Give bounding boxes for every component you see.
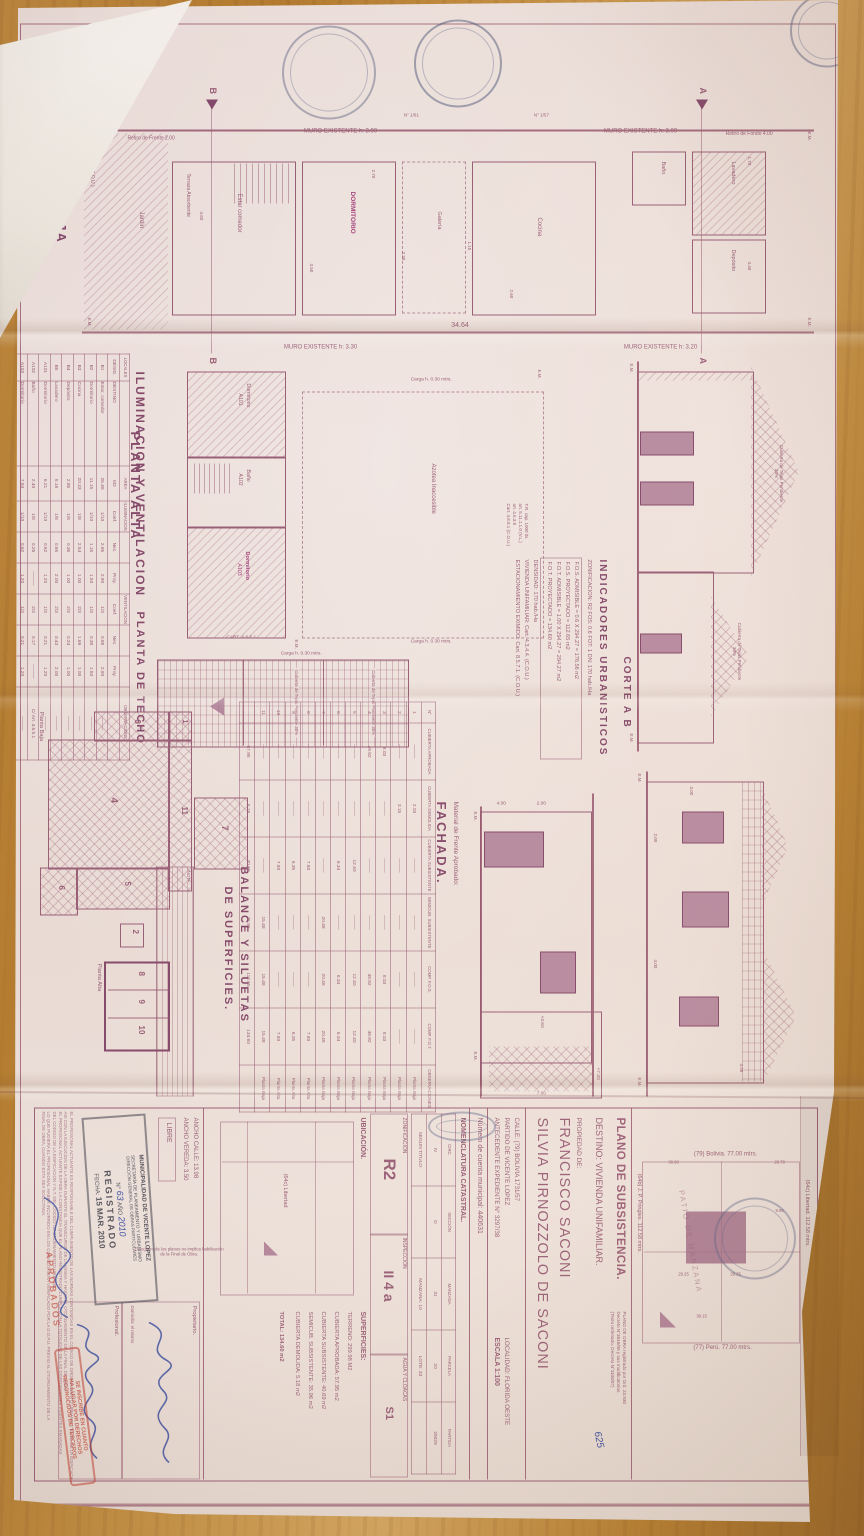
- table-cell: 0.62: [39, 532, 51, 563]
- jardin-hatch: [84, 134, 168, 330]
- section-line-a: [701, 108, 702, 354]
- table-cell: Coef.: [108, 501, 120, 532]
- table-cell: ———: [406, 723, 421, 780]
- zonificacion-cell: ZONIFICACIÓN R2: [370, 1114, 408, 1236]
- zonificacion-value: R2: [379, 1159, 399, 1181]
- table-cell: CUBIERTA SUBSISTENTE: [421, 837, 435, 894]
- table-cell: [119, 381, 129, 466]
- table-cell: 0.17: [27, 625, 39, 656]
- plan-title: PLANO DE SUBSISTENCIA.: [613, 1118, 626, 1280]
- table-cell: 7.50: [16, 466, 28, 501]
- ubicacion-map: [220, 1122, 354, 1296]
- table-cell: COMP. F.O.S.: [421, 951, 435, 1008]
- table-cell: B3: [73, 354, 85, 381]
- table-cell: Dormitorio: [39, 381, 51, 466]
- superficies-title: SUPERFICIES:: [358, 1312, 366, 1361]
- table-row: 38.03—————————8.038.03Planta Baja: [376, 702, 391, 1112]
- round-seal-icon: [790, 0, 864, 68]
- stamp-num-value: 63: [115, 1190, 126, 1201]
- table-cell: 2.90: [96, 563, 108, 594]
- table-cell: OBSERVACIONES: [421, 1065, 435, 1112]
- table-cell: [119, 625, 129, 656]
- roof-label: Cubierta de Tejas Pendiente 30%: [773, 442, 784, 506]
- table-cell: ———: [285, 894, 300, 951]
- table-cell: 2.85: [62, 466, 74, 501]
- propietario-box: Propietario. Domicilio: el mismo: [122, 1302, 200, 1480]
- house-number: N° 1/61: [404, 112, 419, 117]
- tank-note: T.R. cap. 1000 lts.: [524, 504, 529, 540]
- table-cell: 6.21: [39, 466, 51, 501]
- parapet-label: Carga h. 0.30 mtrs.: [411, 639, 452, 645]
- parapet-label: Carga h. 0.30 mtrs.: [281, 651, 322, 657]
- table-cell: ———: [300, 723, 315, 780]
- table-cell: Planta Baja: [406, 1065, 421, 1112]
- table-cell: 0.43: [50, 625, 62, 656]
- table-cell: ———: [255, 723, 270, 780]
- table-cell: 1.50: [85, 563, 97, 594]
- table-cell: 12.40: [346, 837, 361, 894]
- libre-cell: LIBRE: [158, 1118, 176, 1182]
- cart-ref: CART. 4.6.5.1: [226, 636, 256, 642]
- table-cell: ———: [285, 780, 300, 837]
- table-cell: 5.18: [50, 466, 62, 501]
- silhouette-2: [120, 924, 144, 948]
- profesional-label: Profesional.: [112, 1306, 119, 1337]
- silhouette-1: [168, 712, 192, 742]
- parapet-label: Carga h. 0.30 mtrs.: [411, 377, 452, 383]
- room-code: A101: [236, 394, 242, 406]
- table-row: B3Cocina20.331/82.541.002/31.691.00———: [73, 354, 85, 760]
- table-cell: 0.88: [96, 625, 108, 656]
- table-cell: B5: [50, 354, 62, 381]
- setback-label: Retiro de Fondo 4.00: [726, 132, 773, 138]
- table-cell: [240, 702, 255, 723]
- table-cell: 7.80: [300, 1008, 315, 1065]
- propiedad-label: PROPIEDAD DE:: [575, 1118, 582, 1169]
- silhouette-4: [48, 740, 170, 870]
- dim-total: 34.64: [451, 322, 469, 330]
- stamp-ano-value: 2010: [117, 1216, 128, 1237]
- municipal-seal-icon: [714, 1198, 796, 1280]
- window: [682, 892, 729, 928]
- table-cell: ———: [255, 837, 270, 894]
- tank-note: art. 5.11.1.1.0 (V.L.): [518, 504, 523, 543]
- table-cell: Nec.: [108, 532, 120, 563]
- table-cell: Planta Baja: [255, 1065, 270, 1112]
- stair: [234, 164, 292, 204]
- group-label: Planta Baja: [37, 712, 44, 742]
- table-cell: 1/3: [85, 594, 97, 625]
- table-row: N°CUBIERTA APROBADACUBIERTA DEMOLIDACUBI…: [421, 702, 435, 1112]
- table-cell: LOTE: 33: [412, 1330, 427, 1402]
- table-cell: 1/10: [39, 501, 51, 532]
- table-cell: 1/8: [27, 501, 39, 532]
- garden-label: Jardín: [137, 212, 144, 229]
- silhouette-number: 8: [137, 972, 146, 976]
- table-cell: Cocina: [73, 381, 85, 466]
- balance-title: BALANCE Y SILUETAS: [237, 867, 250, 1023]
- owner-name: SILVIA PIRNOZZOLO DE SACONI: [533, 1118, 550, 1370]
- indicadores-line: F.O.T. ADMISIBLE = 1.00 X 294.27 = 294.2…: [555, 562, 561, 682]
- table-cell: 8.03: [376, 951, 391, 1008]
- owner-name: FRANCISCO SACONI: [555, 1118, 572, 1279]
- table-cell: 1.00: [62, 563, 74, 594]
- room-label: Baño: [660, 162, 666, 175]
- table-cell: 1.20: [16, 656, 28, 687]
- table-cell: Proy.: [108, 656, 120, 687]
- table-cell: 1.20: [39, 563, 51, 594]
- table-row: 449.92—————————49.9249.92Planta Baja: [361, 702, 376, 1112]
- table-cell: 2.40: [27, 466, 39, 501]
- table-cell: ———: [315, 780, 330, 837]
- ancho-vereda: ANCHO VEREDA: 3.50: [181, 1118, 188, 1181]
- dim: 3.50: [309, 264, 314, 273]
- section-line-b: [211, 108, 212, 354]
- table-cell: ———: [27, 656, 39, 687]
- em-mark: E.M.: [629, 734, 634, 743]
- table-cell: 20.48: [315, 894, 330, 951]
- table-cell: 4: [361, 702, 376, 723]
- table-cell: 15.48: [255, 1008, 270, 1065]
- dim: 2.00: [653, 834, 658, 843]
- street-pringles: (64b) J. P. Pringles. 112.58 mtrs.: [636, 1174, 642, 1253]
- table-cell: ———: [300, 780, 315, 837]
- table-cell: ———: [361, 780, 376, 837]
- silhouette-3: [94, 712, 170, 742]
- room-label: Depósito: [730, 250, 736, 272]
- table-cell: 9: [285, 702, 300, 723]
- divider: [525, 1108, 526, 1480]
- table-cell: 2.54: [73, 532, 85, 563]
- planta-baja-title: PLANTA BAJA: [53, 132, 68, 244]
- galeria-outline: [402, 162, 466, 314]
- table-cell: B1: [96, 354, 108, 381]
- table-cell: N°: [421, 702, 435, 723]
- table-cell: Planta Baja: [330, 1065, 345, 1112]
- table-cell: ———: [376, 894, 391, 951]
- plano-obra-note: Decreto N°3616/06 y sus modificatorios.: [616, 1312, 621, 1394]
- em-mark: E.M.: [473, 812, 478, 821]
- table-cell: COMP. F.O.T.: [421, 1008, 435, 1065]
- inspeccion-value: II 4 a: [381, 1271, 397, 1302]
- table-cell: 1: [406, 702, 421, 723]
- table-cell: ———: [285, 951, 300, 1008]
- superficie-line: SEMICUB. SUBSISTENTE: 35.96 m2: [306, 1312, 313, 1409]
- table-cell: CUBIERTA APROBADA: [421, 723, 435, 780]
- inspeccion-label: INSPECCIÓN: [400, 1238, 406, 1269]
- table-row: 1———2.03————————————Planta Baja: [406, 702, 421, 1112]
- superficie-total: TOTAL: 134.60 m2: [277, 1312, 284, 1362]
- wall-hatch: [639, 372, 754, 381]
- table-row: LOCALESAREAILUMINACIONVENTILACIONOBSERVA…: [119, 354, 129, 760]
- table-cell: SECCIÓN: [442, 1186, 456, 1258]
- table-cell: ———: [376, 780, 391, 837]
- table-cell: 0.65: [50, 532, 62, 563]
- table-cell: 8.03: [376, 1008, 391, 1065]
- table-row: 8——————7.80——————7.80Planta Alta: [300, 702, 315, 1112]
- table-cell: ———: [255, 780, 270, 837]
- room-cocina: [472, 162, 596, 316]
- table-cell: 49.92: [361, 1008, 376, 1065]
- table-cell: 0.62: [16, 532, 28, 563]
- silhouette-5: [76, 868, 170, 910]
- table-cell: ———: [376, 837, 391, 894]
- table-cell: A102: [27, 354, 39, 381]
- table-cell: [119, 563, 129, 594]
- tank-note: art. 4.6.3.8: [512, 504, 517, 526]
- table-cell: 15.48: [255, 894, 270, 951]
- table-cell: ———: [270, 780, 285, 837]
- group-label: Planta Alta: [95, 964, 102, 992]
- em-mark: E.M.: [637, 1078, 642, 1087]
- dim: 2.00: [537, 801, 546, 807]
- silhouette-7: [194, 798, 248, 870]
- table-cell: 7: [315, 702, 330, 723]
- section-marker-b: B: [208, 358, 218, 365]
- balance-title: DE SUPERFICIES.: [221, 887, 234, 1012]
- window: [540, 952, 576, 994]
- table-row: 2———3.15————————————Planta Baja: [391, 702, 406, 1112]
- em-mark: E.M.: [807, 132, 812, 141]
- dim: 2.70: [371, 170, 376, 179]
- table-cell: ———: [391, 1008, 406, 1065]
- table-cell: VENTILACION: [119, 594, 129, 625]
- table-cell: ILUMINACION: [119, 501, 129, 532]
- iluminacion-table: LOCALESAREAILUMINACIONVENTILACIONOBSERVA…: [15, 354, 130, 761]
- table-cell: DESIG.: [108, 354, 120, 381]
- window: [679, 997, 719, 1027]
- table-cell: 1.20: [16, 563, 28, 594]
- em-mark: E.M.: [629, 364, 634, 373]
- table-cell: 1.20: [39, 656, 51, 687]
- table-cell: 20.33: [73, 466, 85, 501]
- table-cell: 2.03: [406, 780, 421, 837]
- table-cell: ———: [330, 723, 345, 780]
- silhouette-number: 7: [220, 826, 230, 831]
- table-cell: Dormitorio: [85, 381, 97, 466]
- table-cell: 10: [270, 702, 285, 723]
- table-cell: 12.40: [346, 951, 361, 1008]
- table-cell: AREA: [119, 466, 129, 501]
- slope-arrow-icon: [210, 698, 224, 716]
- section-building: [637, 372, 754, 574]
- room-a101: [187, 372, 286, 459]
- table-cell: 2.00: [50, 656, 62, 687]
- table-cell: Planta Alta: [270, 1065, 285, 1112]
- map-dim: 28.78: [774, 1160, 784, 1165]
- table-cell: 1/10: [96, 501, 108, 532]
- table-cell: ———: [27, 563, 39, 594]
- table-cell: 57.95: [240, 723, 255, 780]
- divider: [487, 1108, 488, 1480]
- wall-label: MURO EXISTENTE h: 3.00: [304, 129, 377, 136]
- wall-label: MURO EXISTENTE h: 3.00: [604, 129, 677, 136]
- dim: 1.15: [467, 242, 472, 251]
- table-cell: ———: [391, 837, 406, 894]
- table-cell: ———: [315, 723, 330, 780]
- room-a103: [187, 527, 286, 639]
- table-row: DESIG.DESTINOM2Coef.Nec.Proy.Coef.Nec.Pr…: [108, 354, 120, 760]
- silhouette-number: 2: [131, 930, 140, 934]
- table-cell: 7.80: [300, 837, 315, 894]
- balance-table: N°CUBIERTA APROBADACUBIERTA DEMOLIDACUBI…: [239, 702, 436, 1113]
- iluminacion-title: ILUMINACION Y VENTILACION: [132, 372, 146, 598]
- room-label: Galería: [436, 212, 442, 230]
- silhouette-divider: [108, 1018, 170, 1019]
- table-cell: 3.15: [391, 780, 406, 837]
- table-cell: Coef.: [108, 594, 120, 625]
- table-cell: 2/3: [50, 594, 62, 625]
- em-mark: E.M.: [87, 318, 92, 327]
- table-cell: Planta Baja: [391, 1065, 406, 1112]
- registration-stamp: MUNICIPALIDAD DE VICENTE LOPEZ SECRETARÍ…: [82, 1113, 159, 1305]
- indicadores-line: F.O.T. PROYECTADO = 134.60 m2: [546, 562, 552, 650]
- table-cell: Dormitorio: [16, 381, 28, 466]
- map-dim: 29.25: [678, 1272, 688, 1277]
- dim: 1.70: [747, 157, 752, 166]
- room-bano: [632, 152, 686, 206]
- table-row: SEGUN TITULO:MANZANA: 10LOTE: 33: [412, 1114, 427, 1474]
- table-cell: ———: [406, 951, 421, 1008]
- destino-label: DESTINO: VIVIENDA UNIFAMILIAR.: [594, 1118, 604, 1266]
- section-marker-b: B: [208, 88, 218, 95]
- round-seal-icon: [414, 20, 502, 108]
- street-peru: (77) Perú. 77.00 mtrs.: [693, 1345, 751, 1352]
- table-cell: ———: [361, 837, 376, 894]
- silhouette-number: 9: [137, 1000, 146, 1004]
- table-cell: 12.40: [346, 1008, 361, 1065]
- table-cell: ———: [346, 894, 361, 951]
- localidad-line: LOCALIDAD: FLORIDA OESTE: [503, 1338, 510, 1426]
- propietario-label: Propietario.: [190, 1306, 197, 1336]
- silhouette-number: 11: [180, 807, 189, 815]
- stamp-ano-label: AÑO: [116, 1202, 123, 1215]
- table-cell: ———: [300, 951, 315, 1008]
- zonificacion-label: ZONIFICACIÓN: [400, 1118, 406, 1154]
- table-cell: 1/3: [96, 594, 108, 625]
- stair: [194, 464, 232, 494]
- lot-line: [82, 332, 814, 334]
- partido-line: PARTIDO DE VICENTE LOPEZ: [503, 1118, 510, 1206]
- plano-obra-note: (Texto ordenado. Decreto N°1106/07): [610, 1312, 615, 1388]
- table-cell: 2/3: [73, 594, 85, 625]
- table-cell: D: [427, 1186, 442, 1258]
- table-cell: ———: [330, 894, 345, 951]
- silhouette-number: 6: [57, 886, 66, 890]
- table-cell: ———: [406, 837, 421, 894]
- table-cell: SEGUN TITULO:: [412, 1114, 427, 1186]
- level-dim: +3.60: [538, 1016, 544, 1028]
- door-opening: [640, 432, 694, 456]
- table-cell: Planta Alta: [285, 1065, 300, 1112]
- dim: 3.98: [739, 1064, 744, 1073]
- table-cell: 1.00: [73, 563, 85, 594]
- table-cell: [119, 532, 129, 563]
- table-cell: 2: [391, 702, 406, 723]
- dim: 4.40: [747, 262, 752, 271]
- table-cell: 1.15: [85, 532, 97, 563]
- cart-ref: CART. 4.7.3.2.2 (C.O.U.): [88, 132, 94, 187]
- plano-obra-note: PLANO DE OBRA registrado por Ord. 23.930: [622, 1312, 627, 1404]
- table-cell: ———: [16, 687, 28, 760]
- door-opening: [640, 634, 682, 654]
- table-cell: 2.00: [50, 563, 62, 594]
- table-cell: 1.50: [85, 656, 97, 687]
- map-line: [315, 1122, 316, 1294]
- indicadores-line: F.O.S. PROYECTADO = 112.65 m2: [564, 562, 570, 650]
- indicadores-line: ZONIFICACION: R2 FOS: 0.6 FOT: 1 DN: 170…: [586, 560, 592, 696]
- table-cell: ———: [285, 723, 300, 780]
- table-row: B2Dormitorio11.151/101.151.501/30.381.50…: [85, 354, 97, 760]
- dim: 4.60: [199, 212, 204, 221]
- escala-line: ESCALA 1:100: [492, 1338, 500, 1386]
- table-cell: 6.34: [330, 1008, 345, 1065]
- silhouette-6: [40, 868, 78, 916]
- em-mark: E.M.: [473, 1052, 478, 1061]
- table-cell: 0.21: [39, 625, 51, 656]
- table-cell: 1/8: [73, 501, 85, 532]
- wall-label: MURO EXISTENTE h: 3.30: [284, 345, 357, 352]
- roof-band: [742, 782, 764, 1082]
- oval-seal-icon: [428, 1112, 496, 1142]
- table-cell: Planta Baja: [361, 1065, 376, 1112]
- table-row: 6——————6.34———6.346.34Planta Baja: [330, 702, 345, 1112]
- table-cell: [412, 1186, 427, 1258]
- table-cell: 11.15: [85, 466, 97, 501]
- table-cell: M2: [108, 466, 120, 501]
- table-cell: Planta Baja: [346, 1065, 361, 1112]
- azotea-label: Azotea Inaccesible: [429, 464, 436, 514]
- house-number: N° 1/57: [534, 112, 549, 117]
- table-cell: [240, 1065, 255, 1112]
- table-cell: 1/10: [16, 501, 28, 532]
- table-row: A103Dormitorio7.501/100.621.201/30.211.2…: [16, 354, 28, 760]
- blueprint-paper: MURO EXISTENTE h: 3.00 MURO EXISTENTE h:…: [12, 0, 844, 1528]
- table-cell: ———: [315, 837, 330, 894]
- table-cell: A103: [16, 354, 28, 381]
- superficie-line: CUBIERTA DEMOLIDA: 5.18 m2: [293, 1312, 300, 1397]
- map-dim: 38.98: [668, 1160, 678, 1165]
- table-cell: Proy.: [108, 563, 120, 594]
- map-dim: 38.15: [696, 1314, 706, 1319]
- table-row: A102Baño2.401/80.26———2/30.17———C/ Art. …: [27, 354, 39, 760]
- street-label: Calle: (79) Bolivia: [74, 132, 82, 187]
- divider: [631, 1108, 632, 1480]
- wall-label: MURO EXISTENTE h: 3.20: [624, 345, 697, 352]
- table-cell: ———: [391, 723, 406, 780]
- superficie-line: CUBIERTA SUBSISTENTE: 40.69 m2: [319, 1312, 326, 1410]
- table-cell: CUBIERTA DEMOLIDA: [421, 780, 435, 837]
- table-cell: 0.24: [62, 625, 74, 656]
- table-cell: [119, 656, 129, 687]
- room-label: Baño: [244, 470, 250, 482]
- table-cell: ———: [330, 780, 345, 837]
- window: [682, 812, 724, 844]
- round-seal-icon: [282, 26, 376, 120]
- table-cell: 6.34: [330, 837, 345, 894]
- table-cell: Planta Alta: [300, 1065, 315, 1112]
- roof-label: Cubierta de Tejas Pendiente 30%: [731, 620, 742, 684]
- signature-overlap: [28, 1192, 84, 1322]
- table-cell: Planta Baja: [376, 1065, 391, 1112]
- room-dormitorio: [302, 162, 396, 316]
- silhouette-number: 5: [123, 882, 132, 886]
- calle-line: CALLE: (79) BOLIVIA 1731/57: [513, 1118, 520, 1202]
- dim: 4.00: [497, 801, 506, 807]
- dim: 3.00: [689, 787, 694, 796]
- table-cell: ———: [391, 951, 406, 1008]
- ubicacion-title: UBICACIÓN.: [358, 1118, 366, 1160]
